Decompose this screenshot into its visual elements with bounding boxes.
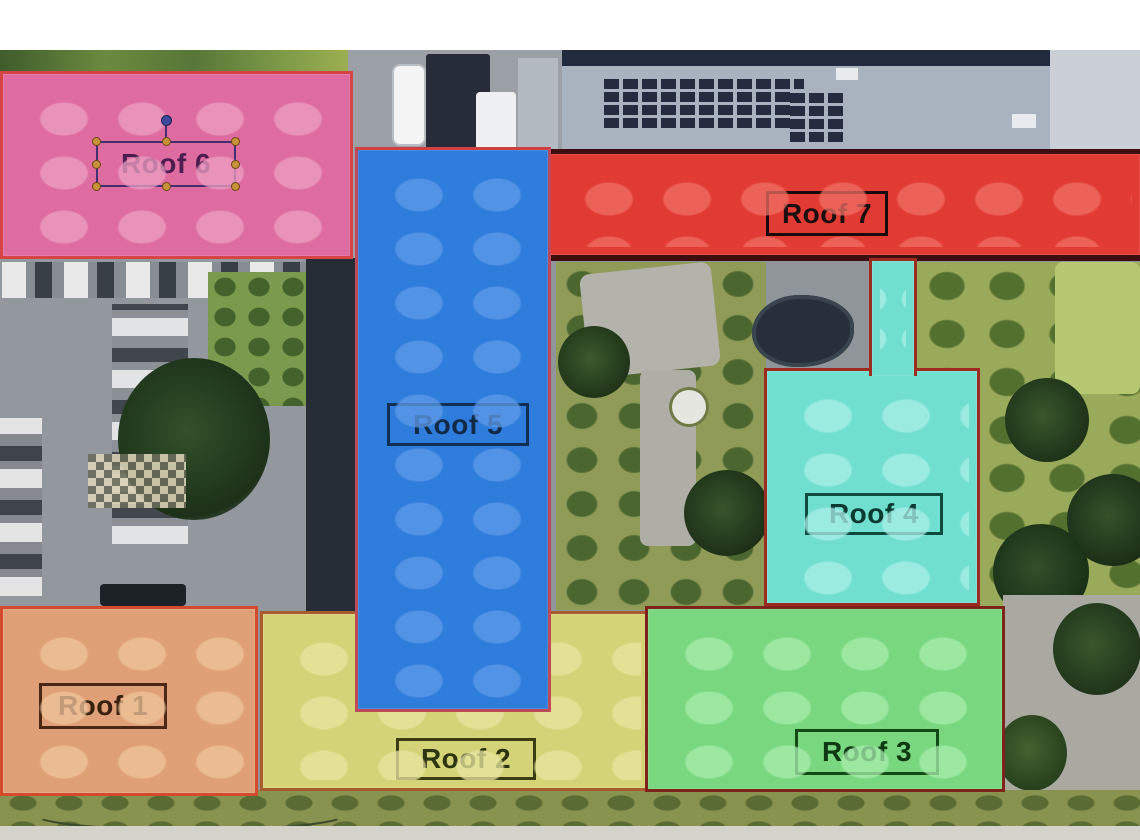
roof-vent <box>1012 114 1036 128</box>
selection-handle-sw[interactable] <box>92 182 101 191</box>
side-path <box>1003 595 1140 795</box>
roof-2-label-text: Roof 2 <box>421 745 511 773</box>
dark-car <box>100 584 186 606</box>
selection-handle-ne[interactable] <box>231 137 240 146</box>
solar-panel-array <box>604 78 804 128</box>
roof-3-label[interactable]: Roof 3 <box>795 729 939 775</box>
roof-7-label-text: Roof 7 <box>782 200 872 228</box>
roof-6-label-text: Roof 6 <box>121 150 211 178</box>
roof-1-label-text: Roof 1 <box>58 692 148 720</box>
path-shrub <box>997 715 1067 791</box>
parking-lot <box>0 258 308 610</box>
parked-car-column-left <box>0 418 42 596</box>
solar-panel-array-small <box>790 90 846 142</box>
light-lawn <box>1055 262 1140 394</box>
roof-4-label-text: Roof 4 <box>829 500 919 528</box>
selection-handle-nw[interactable] <box>92 137 101 146</box>
garden-tree <box>684 470 770 556</box>
garden-pond <box>752 295 854 367</box>
roof-4-overlay[interactable]: Roof 4 <box>764 368 980 606</box>
selection-handle-s[interactable] <box>162 182 171 191</box>
garden-tree <box>558 326 630 398</box>
roof-5-overlay[interactable]: Roof 5 <box>355 147 551 712</box>
selection-handle-e[interactable] <box>231 160 240 169</box>
roof-1-label[interactable]: Roof 1 <box>39 683 167 729</box>
roof-vent <box>836 68 858 80</box>
rotation-handle[interactable] <box>161 115 172 126</box>
courtyard-garden <box>556 262 766 610</box>
garden-tree <box>1005 378 1089 462</box>
sidewalk <box>0 826 1140 840</box>
selection-handle-se[interactable] <box>231 182 240 191</box>
selection-handle-w[interactable] <box>92 160 101 169</box>
roof-6-overlay[interactable]: Roof 6 <box>0 71 353 259</box>
roof-3-overlay[interactable]: Roof 3 <box>645 606 1005 792</box>
roof-7-overlay[interactable]: Roof 7 <box>548 149 1140 261</box>
roof-5-label-text: Roof 5 <box>413 411 503 439</box>
roof-5-label[interactable]: Roof 5 <box>387 403 529 446</box>
dark-roof-strip <box>306 258 356 612</box>
annotated-aerial-view: Roof 6 Roof 7 Roof 4 Roof 1 Roof 2 <box>0 0 1140 840</box>
roof-7-label[interactable]: Roof 7 <box>766 191 888 236</box>
roof-2-label[interactable]: Roof 2 <box>396 738 536 780</box>
roof-6-label[interactable]: Roof 6 <box>96 141 236 187</box>
path-tree <box>1053 603 1140 695</box>
roof-1-overlay[interactable]: Roof 1 <box>0 606 258 796</box>
top-building-right-section <box>1050 50 1140 158</box>
roof-4-overlay-neck[interactable] <box>869 258 917 376</box>
roof-4-label[interactable]: Roof 4 <box>805 493 943 535</box>
white-van <box>394 66 424 144</box>
selection-handle-n[interactable] <box>162 137 171 146</box>
checkered-patio <box>88 454 186 508</box>
gazebo <box>672 390 706 424</box>
grass-strip-bottom <box>0 790 1140 840</box>
roof-3-label-text: Roof 3 <box>822 738 912 766</box>
